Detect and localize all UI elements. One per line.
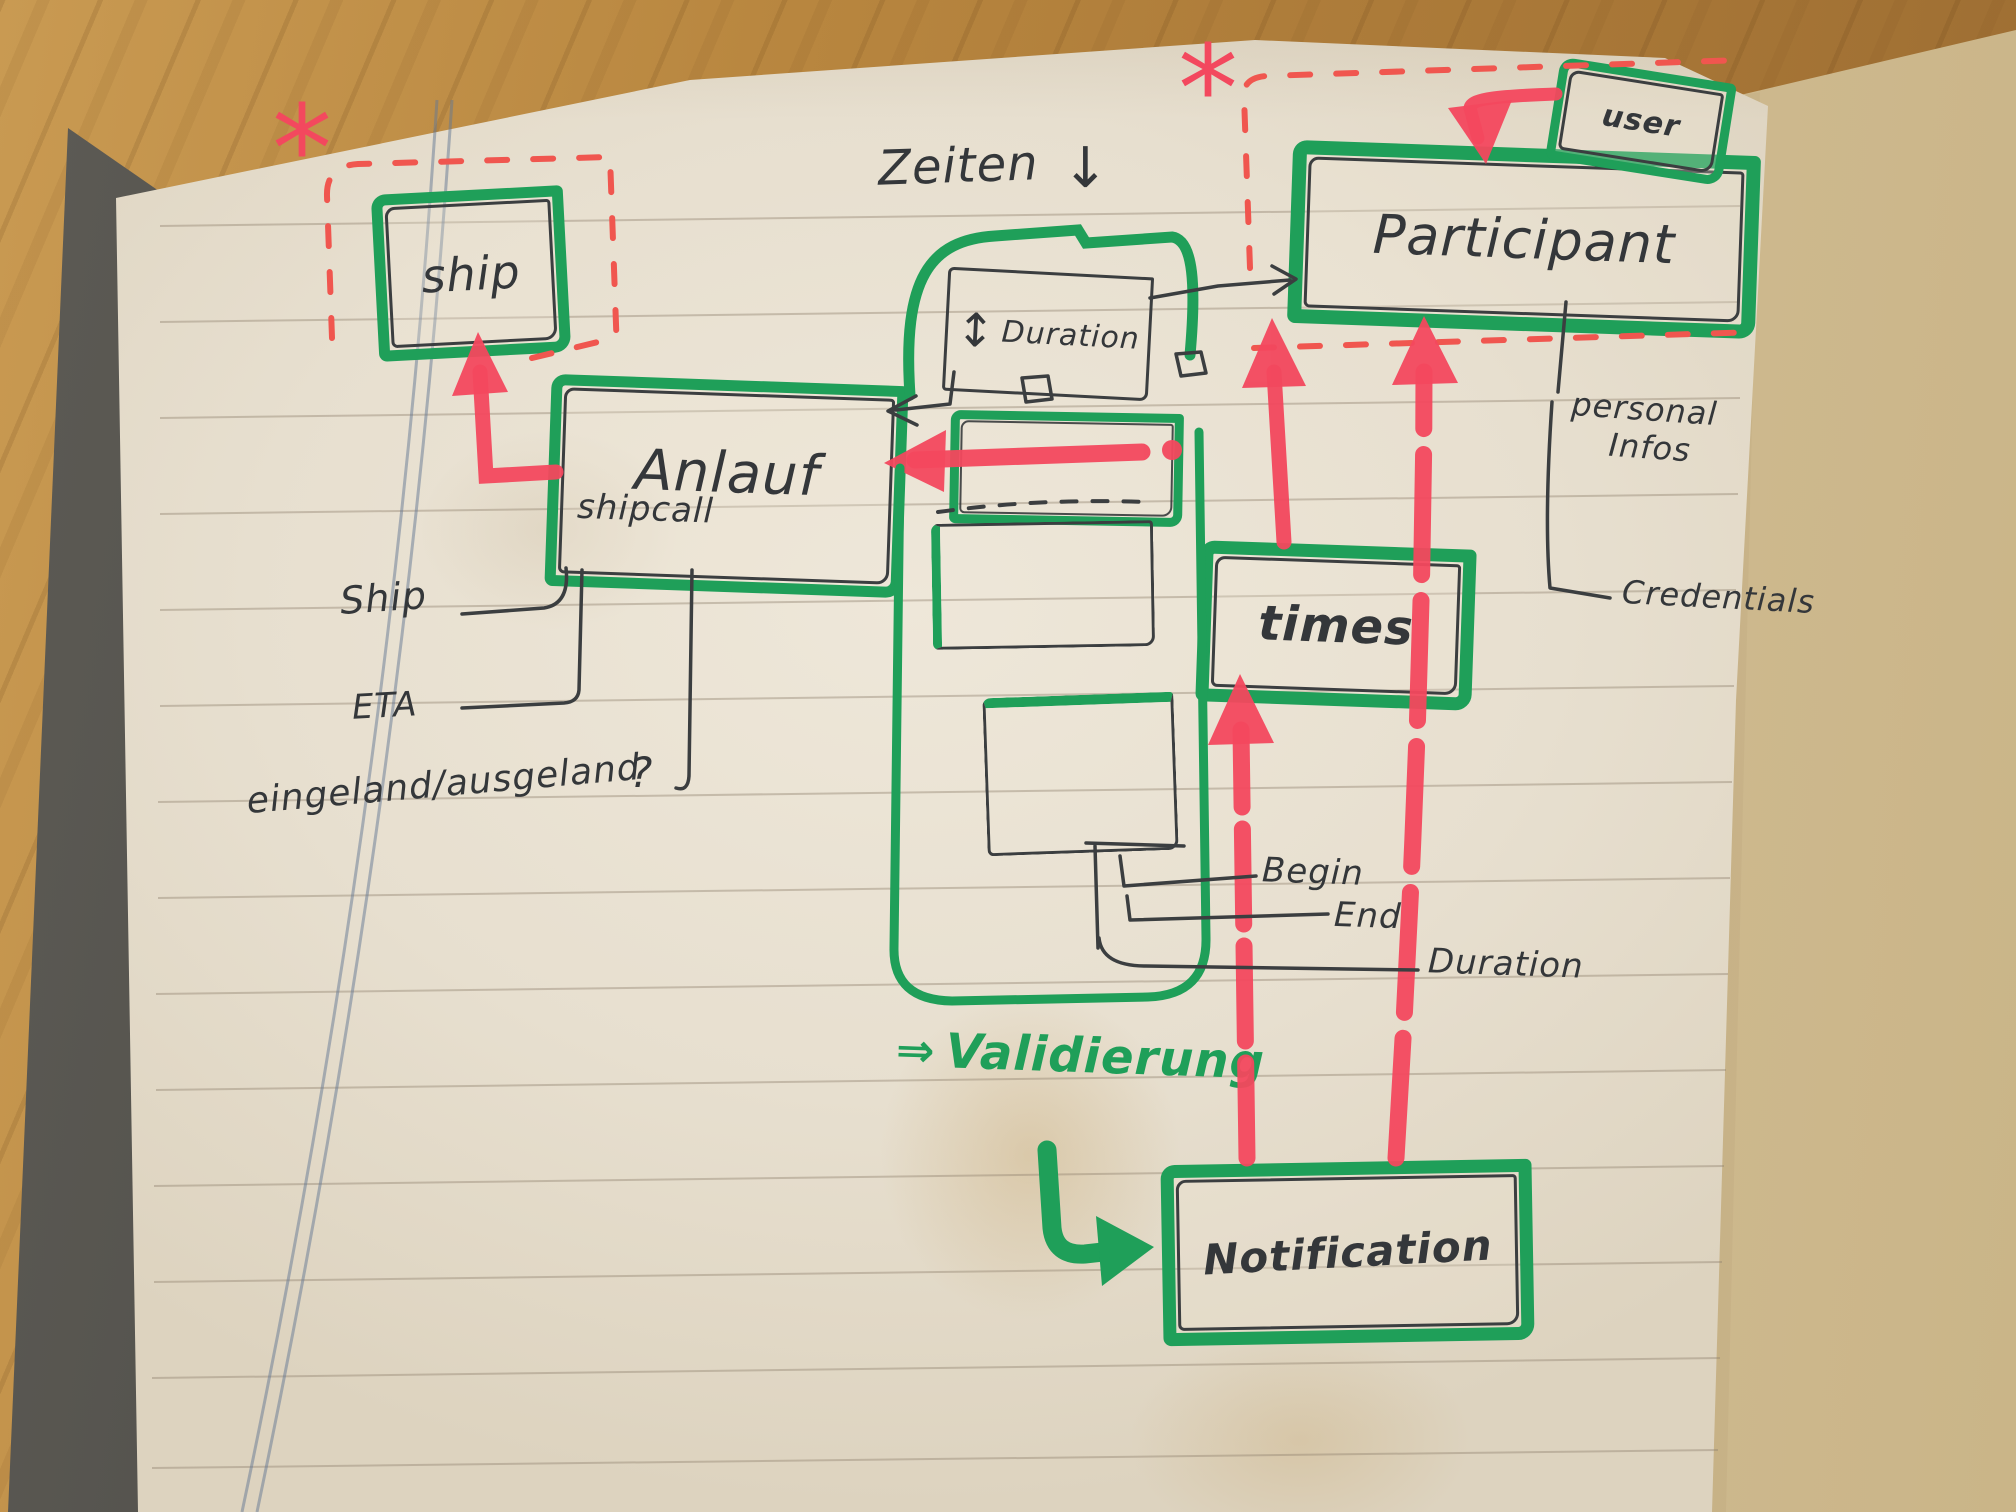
zeiten-item-box-3: [982, 692, 1178, 857]
entity-times: times: [1195, 540, 1476, 711]
entity-times-label: times: [1257, 595, 1414, 656]
zeiten-item-box-2: [931, 520, 1155, 650]
entity-ship: ship: [371, 185, 571, 362]
attr-end-label: End: [1333, 895, 1402, 937]
entity-notification: Notification: [1160, 1159, 1534, 1346]
entity-anlauf: Anlauf shipcall: [544, 374, 908, 598]
entity-user-label: user: [1600, 98, 1683, 145]
attr-personal-infos-label: personal Infos: [1568, 385, 1719, 471]
down-arrow-icon: ↓: [1062, 136, 1110, 201]
implies-arrow-icon: ⇒: [895, 1023, 936, 1078]
attr-begin-label: Begin: [1261, 850, 1364, 894]
entity-ship-label: ship: [420, 244, 522, 303]
entity-participant-label: Participant: [1372, 203, 1677, 277]
updown-arrow-icon: ↕: [955, 302, 997, 358]
question-mark: ?: [630, 748, 653, 797]
attr-ship-label: Ship: [339, 573, 429, 623]
zeiten-heading: Zeiten: [877, 135, 1039, 197]
attr-eta-label: ETA: [351, 684, 418, 727]
entity-notification-label: Notification: [1202, 1220, 1494, 1284]
entity-duration: ↕ Duration: [942, 267, 1154, 402]
validierung-label: Validierung: [945, 1023, 1266, 1090]
entity-duration-label: Duration: [1001, 314, 1141, 356]
asterisk-mark: *: [1178, 58, 1239, 124]
notebook-photo: ship Anlauf shipcall ↕ Duration Particip…: [0, 0, 2016, 1512]
attr-duration-label: Duration: [1427, 941, 1584, 986]
zeiten-item-box-1: [949, 410, 1184, 527]
entity-anlauf-sublabel: shipcall: [577, 486, 715, 531]
asterisk-mark: *: [272, 118, 333, 184]
